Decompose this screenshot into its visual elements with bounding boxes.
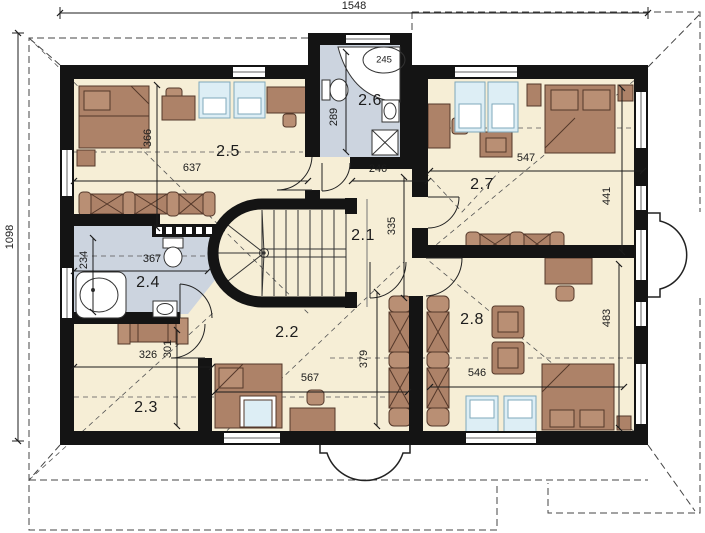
room-number-2-2: 2.2 bbox=[275, 324, 299, 342]
window-right-2-8 bbox=[636, 364, 646, 424]
window-left-2-5 bbox=[62, 150, 72, 196]
window-bottom-2-8 bbox=[466, 433, 536, 443]
bed-room-2-5 bbox=[79, 86, 149, 148]
bed-room-2-2 bbox=[215, 364, 282, 428]
dim-2-8-width: 546 bbox=[468, 367, 486, 379]
room-number-2-8: 2.8 bbox=[460, 311, 484, 329]
window-right-2-7 bbox=[636, 92, 646, 148]
washbasin-room-2-4 bbox=[153, 301, 177, 317]
wardrobe-room-2-8 bbox=[427, 296, 449, 426]
nightstand bbox=[77, 150, 95, 166]
dim-2-7-depth: 441 bbox=[601, 187, 613, 205]
washbasin-room-2-6 bbox=[382, 100, 399, 122]
shower-room-2-6 bbox=[372, 130, 398, 155]
wall-2-5-2-4 bbox=[60, 214, 160, 226]
dim-2-6-bathtub: 245 bbox=[376, 55, 392, 66]
wall-2-5-right bbox=[305, 65, 320, 157]
window-left-2-4 bbox=[62, 268, 72, 318]
stair-wall-stub-bottom bbox=[345, 292, 357, 308]
window-top-2-5 bbox=[233, 67, 265, 77]
wall-2-1-2-7-upper bbox=[412, 65, 428, 197]
room-number-2-5: 2.5 bbox=[216, 143, 240, 161]
dim-2-5-depth: 366 bbox=[142, 129, 154, 147]
floor-plan: 2.5 2.4 2.3 2.2 2.1 2.6 2.7 2.8 1548 109… bbox=[0, 0, 705, 533]
window-right-lower bbox=[636, 302, 646, 326]
dim-2-7-width: 547 bbox=[517, 152, 535, 164]
wall-2-7-2-8 bbox=[412, 245, 634, 258]
dim-overall-height: 1098 bbox=[4, 225, 16, 249]
floor-plan-drawing bbox=[0, 0, 705, 533]
bay-window-bottom bbox=[320, 445, 410, 481]
dim-2-8-depth: 483 bbox=[601, 309, 613, 327]
bay-opening bbox=[636, 230, 646, 280]
nightstand-room-2-7 bbox=[618, 85, 633, 101]
toilet-room-2-4 bbox=[163, 238, 183, 267]
bathtub-room-2-4 bbox=[76, 272, 126, 318]
stair-wall-stub-top bbox=[345, 198, 357, 214]
room-number-2-3: 2.3 bbox=[134, 399, 158, 417]
dim-2-6-depth: 289 bbox=[328, 108, 340, 126]
room-number-2-6: 2.6 bbox=[358, 92, 382, 110]
dim-2-4-width: 367 bbox=[143, 253, 161, 265]
window-top-2-6 bbox=[346, 35, 390, 43]
wall-2-2-2-8 bbox=[409, 296, 423, 445]
dim-2-1-width: 246 bbox=[369, 163, 387, 175]
bed-room-2-7 bbox=[545, 85, 615, 153]
window-right-upper bbox=[636, 186, 646, 210]
dim-2-2-depth: 379 bbox=[358, 350, 370, 368]
wall-2-6-right bbox=[400, 45, 412, 169]
room-number-2-7: 2.7 bbox=[470, 176, 494, 194]
bay-window-right bbox=[648, 213, 687, 297]
room-number-2-1: 2.1 bbox=[351, 227, 375, 245]
wardrobe-room-2-2 bbox=[389, 296, 411, 426]
glass-block-wall bbox=[152, 224, 216, 237]
toilet-room-2-6 bbox=[322, 79, 348, 101]
window-bottom-2-2 bbox=[224, 433, 280, 443]
dim-2-3-depth: 301 bbox=[162, 340, 174, 358]
bed-room-2-8 bbox=[542, 364, 614, 430]
ottoman-room-2-7 bbox=[480, 132, 512, 157]
wardrobe-room-2-5 bbox=[79, 192, 215, 216]
dim-overall-width: 1548 bbox=[342, 0, 366, 12]
wall-2-6-bottom bbox=[350, 157, 428, 169]
dim-2-1-depth: 335 bbox=[386, 217, 398, 235]
dim-2-3-width: 326 bbox=[139, 349, 157, 361]
room-number-2-4: 2.4 bbox=[136, 274, 160, 292]
dim-2-2-width: 567 bbox=[301, 372, 319, 384]
wall-2-3-2-2 bbox=[198, 358, 212, 445]
dim-2-4-depth: 234 bbox=[78, 251, 90, 269]
window-top-2-7 bbox=[455, 67, 517, 77]
shelf-room-2-7 bbox=[527, 84, 541, 106]
dim-2-5-width: 637 bbox=[183, 162, 201, 174]
